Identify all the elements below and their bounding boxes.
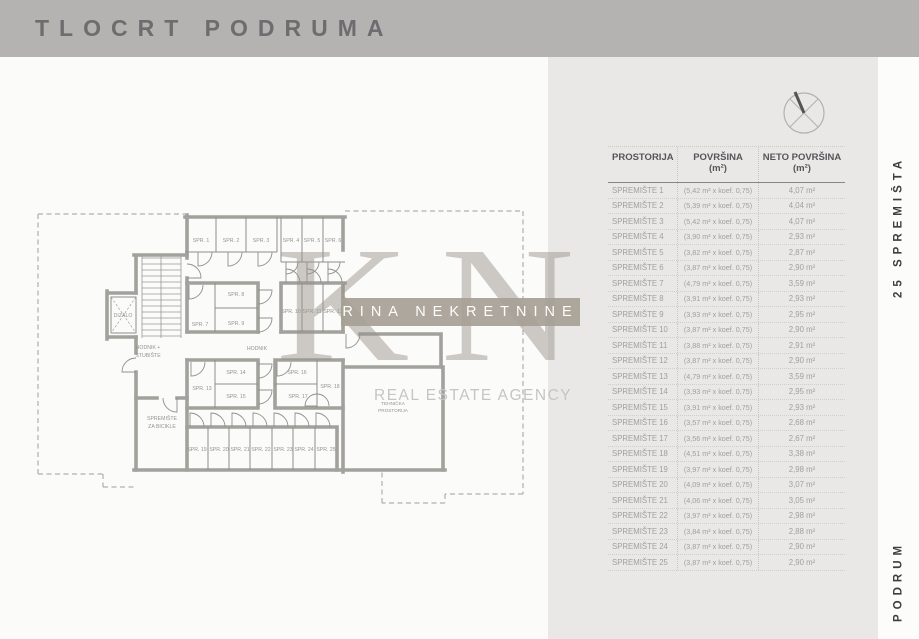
net-area-cell: 2,90 m²	[758, 540, 845, 555]
gross-area-cell: (3,90 m² x koef. 0,75)	[677, 230, 758, 245]
agency-tagline: REAL ESTATE AGENCY	[374, 387, 554, 405]
room-name-cell: SPREMIŠTE 24	[608, 540, 677, 555]
room-name-cell: SPREMIŠTE 12	[608, 354, 677, 369]
table-row: SPREMIŠTE 1(5,42 m² x koef. 0,75)4,07 m²	[608, 183, 845, 199]
room-label: SPR. 24	[294, 447, 313, 453]
gross-area-cell: (3,93 m² x koef. 0,75)	[677, 307, 758, 322]
room-label: SPR. 3	[253, 238, 270, 244]
net-area-cell: 2,98 m²	[758, 462, 845, 477]
corridor-stairs-label: HODNIK +	[136, 345, 161, 351]
table-row: SPREMIŠTE 10(3,87 m² x koef. 0,75)2,90 m…	[608, 323, 845, 339]
table-row: SPREMIŠTE 14(3,93 m² x koef. 0,75)2,95 m…	[608, 385, 845, 401]
room-name-cell: SPREMIŠTE 1	[608, 183, 677, 198]
table-row: SPREMIŠTE 3(5,42 m² x koef. 0,75)4,07 m²	[608, 214, 845, 230]
room-label: SPR. 9	[228, 321, 245, 327]
gross-area-cell: (5,42 m² x koef. 0,75)	[677, 183, 758, 198]
agency-name: RINA NEKRETNINE	[342, 304, 578, 320]
room-name-cell: SPREMIŠTE 23	[608, 524, 677, 539]
technical-room-label: PROSTORIJA	[378, 408, 409, 413]
room-name-cell: SPREMIŠTE 6	[608, 261, 677, 276]
room-label: SPR. 8	[228, 292, 245, 298]
room-label: SPR. 25	[316, 447, 335, 453]
table-row: SPREMIŠTE 4(3,90 m² x koef. 0,75)2,93 m²	[608, 230, 845, 246]
gross-area-cell: (4,09 m² x koef. 0,75)	[677, 478, 758, 493]
net-area-cell: 3,38 m²	[758, 447, 845, 462]
room-name-cell: SPREMIŠTE 7	[608, 276, 677, 291]
gross-area-cell: (3,87 m² x koef. 0,75)	[677, 323, 758, 338]
room-label: SPR. 13	[192, 386, 211, 392]
room-name-cell: SPREMIŠTE 4	[608, 230, 677, 245]
bike-storage-label: ZA BICIKLE	[148, 424, 176, 430]
table-body: SPREMIŠTE 1(5,42 m² x koef. 0,75)4,07 m²…	[608, 183, 845, 571]
column-header: POVRŠINA (m²)	[677, 147, 758, 182]
room-name-cell: SPREMIŠTE 9	[608, 307, 677, 322]
table-row: SPREMIŠTE 5(3,82 m² x koef. 0,75)2,87 m²	[608, 245, 845, 261]
table-row: SPREMIŠTE 7(4,79 m² x koef. 0,75)3,59 m²	[608, 276, 845, 292]
room-name-cell: SPREMIŠTE 14	[608, 385, 677, 400]
gross-area-cell: (3,82 m² x koef. 0,75)	[677, 245, 758, 260]
storage-count-label: 25 SPREMIŠTA	[878, 157, 919, 297]
net-area-cell: 2,88 m²	[758, 524, 845, 539]
gross-area-cell: (3,97 m² x koef. 0,75)	[677, 462, 758, 477]
net-area-cell: 4,04 m²	[758, 199, 845, 214]
room-name-cell: SPREMIŠTE 18	[608, 447, 677, 462]
room-name-cell: SPREMIŠTE 17	[608, 431, 677, 446]
table-row: SPREMIŠTE 15(3,91 m² x koef. 0,75)2,93 m…	[608, 400, 845, 416]
agency-name-banner: RINA NEKRETNINE	[341, 298, 580, 326]
net-area-cell: 2,95 m²	[758, 307, 845, 322]
table-row: SPREMIŠTE 8(3,91 m² x koef. 0,75)2,93 m²	[608, 292, 845, 308]
net-area-cell: 2,98 m²	[758, 509, 845, 524]
table-row: SPREMIŠTE 11(3,88 m² x koef. 0,75)2,91 m…	[608, 338, 845, 354]
room-name-cell: SPREMIŠTE 15	[608, 400, 677, 415]
room-name-cell: SPREMIŠTE 5	[608, 245, 677, 260]
table-row: SPREMIŠTE 2(5,39 m² x koef. 0,75)4,04 m²	[608, 199, 845, 215]
gross-area-cell: (3,57 m² x koef. 0,75)	[677, 416, 758, 431]
table-row: SPREMIŠTE 9(3,93 m² x koef. 0,75)2,95 m²	[608, 307, 845, 323]
gross-area-cell: (5,39 m² x koef. 0,75)	[677, 199, 758, 214]
table-header: PROSTORIJA POVRŠINA (m²) NETO POVRŠINA (…	[608, 146, 845, 183]
side-strip: 25 SPREMIŠTA PODRUM	[878, 57, 919, 639]
net-area-cell: 2,68 m²	[758, 416, 845, 431]
room-name-cell: SPREMIŠTE 21	[608, 493, 677, 508]
net-area-cell: 3,59 m²	[758, 369, 845, 384]
net-area-cell: 3,05 m²	[758, 493, 845, 508]
gross-area-cell: (3,91 m² x koef. 0,75)	[677, 292, 758, 307]
net-area-cell: 2,95 m²	[758, 385, 845, 400]
room-label: SPR. 15	[226, 394, 245, 400]
table-row: SPREMIŠTE 25(3,87 m² x koef. 0,75)2,90 m…	[608, 555, 845, 571]
room-label: SPR. 23	[273, 447, 292, 453]
room-label: SPR. 2	[223, 238, 240, 244]
room-label: SPR. 22	[251, 447, 270, 453]
net-area-cell: 4,07 m²	[758, 214, 845, 229]
room-label: SPR. 14	[226, 370, 245, 376]
room-name-cell: SPREMIŠTE 19	[608, 462, 677, 477]
gross-area-cell: (3,87 m² x koef. 0,75)	[677, 540, 758, 555]
table-row: SPREMIŠTE 16(3,57 m² x koef. 0,75)2,68 m…	[608, 416, 845, 432]
elevator-label: DIZALO	[114, 313, 133, 319]
gross-area-cell: (5,42 m² x koef. 0,75)	[677, 214, 758, 229]
gross-area-cell: (3,97 m² x koef. 0,75)	[677, 509, 758, 524]
gross-area-cell: (4,79 m² x koef. 0,75)	[677, 369, 758, 384]
net-area-cell: 2,93 m²	[758, 400, 845, 415]
net-area-cell: 2,90 m²	[758, 323, 845, 338]
room-label: SPR. 1	[193, 238, 210, 244]
net-area-cell: 4,07 m²	[758, 183, 845, 198]
room-name-cell: SPREMIŠTE 20	[608, 478, 677, 493]
corridor-label: HODNIK	[247, 346, 268, 352]
room-label: SPR. 21	[230, 447, 249, 453]
room-label: SPR. 7	[192, 322, 209, 328]
net-area-cell: 2,93 m²	[758, 230, 845, 245]
net-area-cell: 3,59 m²	[758, 276, 845, 291]
room-label: SPR. 20	[209, 447, 228, 453]
table-row: SPREMIŠTE 6(3,87 m² x koef. 0,75)2,90 m²	[608, 261, 845, 277]
table-row: SPREMIŠTE 20(4,09 m² x koef. 0,75)3,07 m…	[608, 478, 845, 494]
corridor-stairs-label: STUBIŠTE	[135, 352, 161, 359]
page: TLOCRT PODRUMA	[0, 0, 919, 639]
table-row: SPREMIŠTE 18(4,51 m² x koef. 0,75)3,38 m…	[608, 447, 845, 463]
bike-storage-label: SPREMIŠTE	[147, 415, 178, 422]
room-name-cell: SPREMIŠTE 22	[608, 509, 677, 524]
compass-icon	[780, 89, 828, 137]
gross-area-cell: (3,88 m² x koef. 0,75)	[677, 338, 758, 353]
areas-table: PROSTORIJA POVRŠINA (m²) NETO POVRŠINA (…	[608, 146, 845, 571]
net-area-cell: 2,91 m²	[758, 338, 845, 353]
table-row: SPREMIŠTE 22(3,97 m² x koef. 0,75)2,98 m…	[608, 509, 845, 525]
gross-area-cell: (3,91 m² x koef. 0,75)	[677, 400, 758, 415]
net-area-cell: 2,90 m²	[758, 555, 845, 570]
column-header: NETO POVRŠINA (m²)	[758, 147, 845, 182]
room-name-cell: SPREMIŠTE 8	[608, 292, 677, 307]
gross-area-cell: (3,84 m² x koef. 0,75)	[677, 524, 758, 539]
gross-area-cell: (4,51 m² x koef. 0,75)	[677, 447, 758, 462]
table-row: SPREMIŠTE 24(3,87 m² x koef. 0,75)2,90 m…	[608, 540, 845, 556]
gross-area-cell: (3,87 m² x koef. 0,75)	[677, 261, 758, 276]
room-name-cell: SPREMIŠTE 11	[608, 338, 677, 353]
table-row: SPREMIŠTE 23(3,84 m² x koef. 0,75)2,88 m…	[608, 524, 845, 540]
stairs	[142, 256, 181, 338]
gross-area-cell: (3,93 m² x koef. 0,75)	[677, 385, 758, 400]
gross-area-cell: (4,79 m² x koef. 0,75)	[677, 276, 758, 291]
gross-area-cell: (3,87 m² x koef. 0,75)	[677, 354, 758, 369]
table-row: SPREMIŠTE 17(3,56 m² x koef. 0,75)2,67 m…	[608, 431, 845, 447]
gross-area-cell: (4,06 m² x koef. 0,75)	[677, 493, 758, 508]
net-area-cell: 2,67 m²	[758, 431, 845, 446]
room-name-cell: SPREMIŠTE 25	[608, 555, 677, 570]
net-area-cell: 2,93 m²	[758, 292, 845, 307]
room-name-cell: SPREMIŠTE 2	[608, 199, 677, 214]
net-area-cell: 2,87 m²	[758, 245, 845, 260]
floor-name-label: PODRUM	[878, 533, 919, 629]
room-name-cell: SPREMIŠTE 13	[608, 369, 677, 384]
table-row: SPREMIŠTE 12(3,87 m² x koef. 0,75)2,90 m…	[608, 354, 845, 370]
table-row: SPREMIŠTE 13(4,79 m² x koef. 0,75)3,59 m…	[608, 369, 845, 385]
table-row: SPREMIŠTE 21(4,06 m² x koef. 0,75)3,05 m…	[608, 493, 845, 509]
room-name-cell: SPREMIŠTE 16	[608, 416, 677, 431]
room-name-cell: SPREMIŠTE 3	[608, 214, 677, 229]
column-header: PROSTORIJA	[608, 147, 677, 182]
room-name-cell: SPREMIŠTE 10	[608, 323, 677, 338]
room-label: SPR. 19	[187, 447, 206, 453]
net-area-cell: 3,07 m²	[758, 478, 845, 493]
net-area-cell: 2,90 m²	[758, 261, 845, 276]
gross-area-cell: (3,56 m² x koef. 0,75)	[677, 431, 758, 446]
net-area-cell: 2,90 m²	[758, 354, 845, 369]
table-row: SPREMIŠTE 19(3,97 m² x koef. 0,75)2,98 m…	[608, 462, 845, 478]
gross-area-cell: (3,87 m² x koef. 0,75)	[677, 555, 758, 570]
